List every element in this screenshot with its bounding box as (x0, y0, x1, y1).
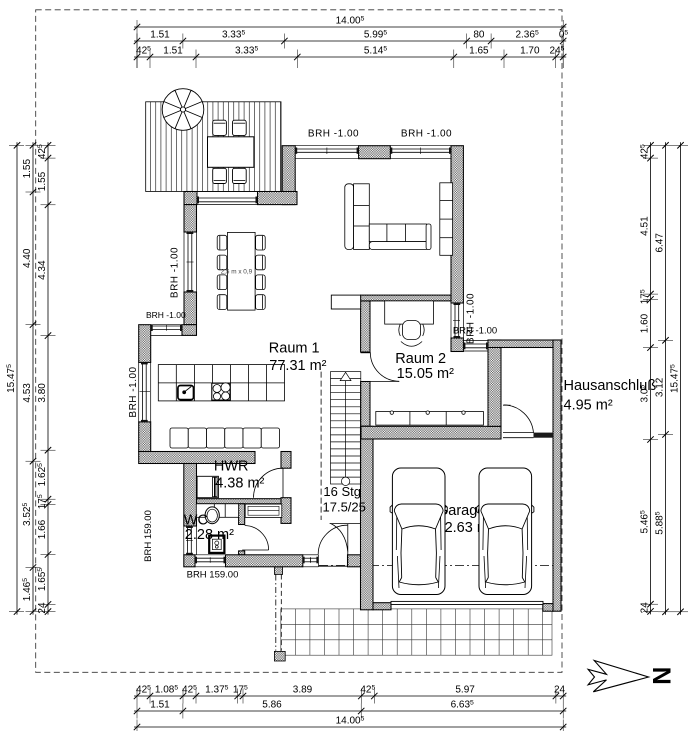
svg-text:5.86: 5.86 (262, 700, 282, 711)
svg-text:BRH -1.00: BRH -1.00 (453, 326, 497, 337)
svg-text:6.47: 6.47 (655, 233, 666, 253)
svg-text:80: 80 (473, 30, 485, 41)
svg-text:15.05 m²: 15.05 m² (397, 366, 454, 382)
svg-text:1.70: 1.70 (520, 46, 540, 57)
svg-text:14.005: 14.005 (336, 715, 365, 726)
svg-text:2.28 m²: 2.28 m² (185, 527, 234, 543)
svg-text:1.51: 1.51 (150, 700, 170, 711)
svg-text:HWR: HWR (214, 458, 249, 474)
svg-text:4.51: 4.51 (640, 216, 651, 236)
svg-text:4.40: 4.40 (22, 248, 33, 268)
svg-text:N: N (649, 667, 677, 685)
svg-text:4.34: 4.34 (37, 260, 48, 280)
svg-text:17.5/25: 17.5/25 (323, 500, 366, 515)
svg-text:4.38 m²: 4.38 m² (215, 475, 264, 491)
svg-text:16 Stg: 16 Stg (323, 484, 361, 499)
svg-text:15.475: 15.475 (6, 364, 17, 393)
svg-text:BRH 159.00: BRH 159.00 (187, 570, 239, 581)
svg-text:BRH 159.00: BRH 159.00 (143, 510, 154, 562)
svg-text:24: 24 (37, 602, 48, 614)
svg-text:24: 24 (640, 602, 651, 614)
svg-text:3.12: 3.12 (655, 377, 666, 397)
svg-text:1.55: 1.55 (37, 171, 48, 191)
svg-text:14.005: 14.005 (336, 15, 365, 26)
svg-text:Raum 2: Raum 2 (395, 351, 446, 367)
svg-text:BRH -1.00: BRH -1.00 (401, 129, 452, 140)
svg-text:4.53: 4.53 (22, 383, 33, 403)
svg-text:1.60: 1.60 (640, 313, 651, 333)
svg-text:2,5 m x 0,9: 2,5 m x 0,9 (221, 269, 253, 276)
svg-text:3.89: 3.89 (293, 685, 313, 696)
svg-text:1.65: 1.65 (469, 46, 489, 57)
svg-text:3.80: 3.80 (37, 383, 48, 403)
svg-text:77.31 m²: 77.31 m² (269, 358, 326, 374)
svg-text:15.475: 15.475 (669, 364, 680, 393)
svg-text:BRH -1.00: BRH -1.00 (128, 366, 139, 417)
svg-text:5.97: 5.97 (455, 685, 475, 696)
svg-text:1.51: 1.51 (163, 46, 183, 57)
svg-text:1.51: 1.51 (150, 30, 170, 41)
svg-text:1.66: 1.66 (37, 519, 48, 539)
svg-text:BRH -1.00: BRH -1.00 (308, 129, 359, 140)
svg-text:24: 24 (554, 685, 566, 696)
svg-text:BRH -1.00: BRH -1.00 (146, 310, 186, 320)
svg-text:BRH -1.00: BRH -1.00 (170, 247, 181, 298)
svg-text:1.55: 1.55 (22, 159, 33, 179)
svg-text:Raum 1: Raum 1 (269, 341, 320, 357)
svg-text:4.95 m²: 4.95 m² (564, 398, 613, 414)
